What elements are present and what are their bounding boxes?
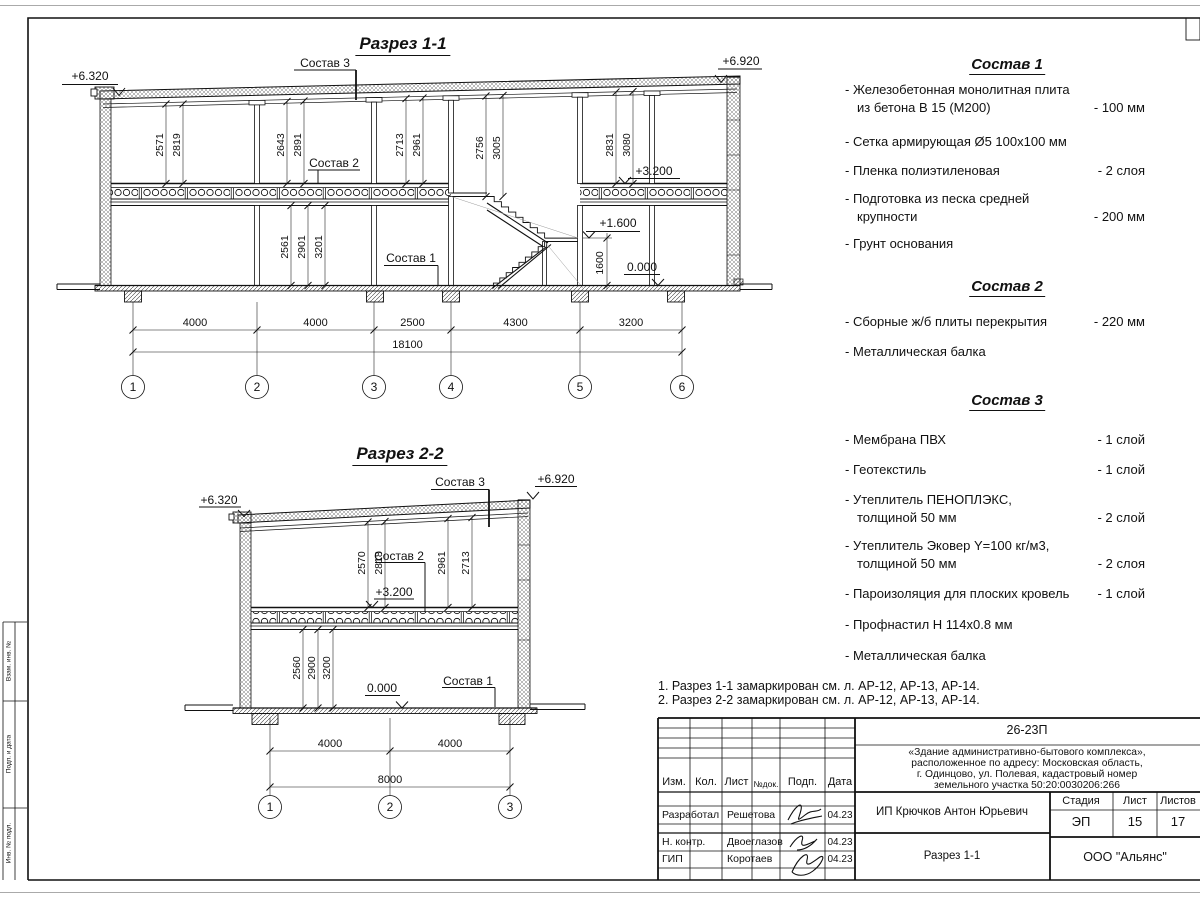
- dim-text: 2891: [292, 133, 304, 156]
- section1-linework: [57, 76, 772, 302]
- leader-label-sostav3: Состав 3: [435, 475, 485, 489]
- signature-3: [792, 855, 823, 876]
- dim-text: 4000: [318, 738, 342, 750]
- spec-value: - 2 слой: [1075, 510, 1145, 525]
- level-mark: +3.200: [375, 585, 412, 599]
- stamp-date: 04.23: [827, 854, 852, 865]
- spec-item: - Сетка армирующая Ø5 100х100 мм: [845, 134, 1067, 149]
- dim-text: 4300: [503, 317, 527, 329]
- stage-label: Стадия: [1062, 795, 1100, 807]
- spec-item: - Железобетонная монолитная плита: [845, 82, 1070, 97]
- spec-item: - Металлическая балка: [845, 648, 986, 663]
- spec-item: - Подготовка из песка средней: [845, 191, 1029, 206]
- dim-text: 2819: [171, 133, 183, 156]
- spec2-title: Состав 2: [969, 278, 1045, 297]
- dim-text: 4000: [438, 738, 462, 750]
- spec-item: крупности: [857, 209, 917, 224]
- axis-bubble: 4: [448, 380, 455, 394]
- spec-value: - 1 слой: [1075, 432, 1145, 447]
- spec-item: - Мембрана ПВХ: [845, 432, 946, 447]
- spec-value: - 200 мм: [1075, 209, 1145, 224]
- axis-bubble: 2: [254, 380, 261, 394]
- dim-text: 3200: [321, 656, 333, 679]
- stamp-date: 04.23: [827, 837, 852, 848]
- dim-text: 8000: [378, 774, 402, 786]
- stamp-role: ГИП: [662, 853, 683, 865]
- client-name: ИП Крючков Антон Юрьевич: [876, 806, 1028, 818]
- spec-item: толщиной 50 мм: [857, 556, 957, 571]
- leader-label-sostav1: Состав 1: [386, 251, 436, 265]
- drawing-sheet: Разрез 1-1 Состав 3 +6.320 +6.920 Состав…: [0, 0, 1200, 900]
- spec-value: - 220 мм: [1075, 314, 1145, 329]
- spec-item: - Геотекстиль: [845, 462, 926, 477]
- col-header: №док.: [754, 779, 779, 789]
- dim-text: 1600: [594, 251, 606, 274]
- company-name: ООО "Альянс": [1083, 850, 1167, 864]
- spec-item: - Сборные ж/б плиты перекрытия: [845, 314, 1047, 329]
- spec-item: - Металлическая балка: [845, 344, 986, 359]
- listov-label: Листов: [1160, 795, 1196, 807]
- level-mark: 0.000: [367, 681, 397, 695]
- spec-value: - 100 мм: [1075, 100, 1145, 115]
- stamp-name: Решетова: [727, 809, 775, 821]
- axis-bubble: 1: [267, 800, 274, 814]
- project-line: г. Одинцово, ул. Полевая, кадастровый но…: [917, 769, 1137, 780]
- dim-text: 2900: [306, 656, 318, 679]
- level-mark: +3.200: [635, 164, 672, 178]
- dim-text: 3201: [313, 235, 325, 258]
- spec-item: - Утеплитель ПЕНОПЛЭКС,: [845, 492, 1012, 507]
- dim-text: 2756: [474, 136, 486, 159]
- dim-text: 4000: [303, 317, 327, 329]
- listov-value: 17: [1171, 814, 1185, 829]
- spec-item: толщиной 50 мм: [857, 510, 957, 525]
- level-mark: +6.920: [537, 472, 574, 486]
- level-mark: +6.920: [722, 54, 759, 68]
- level-mark: +6.320: [200, 493, 237, 507]
- stamp-name: Коротаев: [727, 853, 772, 865]
- spec-item: из бетона В 15 (М200): [857, 100, 991, 115]
- signature-2: [790, 836, 817, 850]
- frame-stamp-label: Подп. и дата: [6, 735, 13, 773]
- drawing-title: Разрез 1-1: [924, 850, 980, 862]
- dim-text: 2561: [279, 235, 291, 258]
- note-line: 1. Разрез 1-1 замаркирован см. л. АР-12,…: [658, 679, 980, 693]
- dim-text: 2571: [154, 133, 166, 156]
- leader-label-sostav3: Состав 3: [300, 56, 350, 70]
- axis-bubble: 2: [387, 800, 394, 814]
- dim-text: 3080: [621, 133, 633, 156]
- col-header: Изм.: [662, 776, 686, 788]
- dim-text: 2818: [373, 551, 385, 574]
- project-line: «Здание административно-бытового комплек…: [908, 747, 1145, 758]
- dim-text: 3005: [491, 136, 503, 159]
- spec-item: - Пароизоляция для плоских кровель: [845, 586, 1069, 601]
- leader-label-sostav2: Состав 2: [309, 156, 359, 170]
- section2-title: Разрез 2-2: [352, 444, 447, 466]
- dim-text: 2901: [296, 235, 308, 258]
- axis-bubble: 1: [130, 380, 137, 394]
- list-value: 15: [1128, 814, 1142, 829]
- dim-text: 2961: [436, 551, 448, 574]
- dim-text: 18100: [392, 339, 423, 351]
- stamp-role: Н. контр.: [662, 836, 705, 848]
- dim-text: 2500: [400, 317, 424, 329]
- spec-item: - Грунт основания: [845, 236, 953, 251]
- spec-value: - 1 слой: [1075, 462, 1145, 477]
- spec1-title: Состав 1: [969, 56, 1045, 75]
- axis-bubble: 3: [507, 800, 514, 814]
- spec-value: - 2 слоя: [1075, 556, 1145, 571]
- dim-text: 2713: [460, 551, 472, 574]
- spec-value: - 2 слоя: [1075, 163, 1145, 178]
- stamp-date: 04.23: [827, 810, 852, 821]
- doc-number: 26-23П: [1007, 723, 1048, 737]
- note-line: 2. Разрез 2-2 замаркирован см. л. АР-12,…: [658, 693, 980, 707]
- dim-text: 2961: [411, 133, 423, 156]
- col-header: Подп.: [788, 776, 817, 788]
- axis-bubble: 6: [679, 380, 686, 394]
- col-header: Лист: [725, 776, 749, 788]
- spec-item: - Профнастил Н 114х0.8 мм: [845, 617, 1013, 632]
- list-label: Лист: [1123, 795, 1147, 807]
- spec-value: - 1 слой: [1075, 586, 1145, 601]
- project-line: земельного участка 50:20:0030206:266: [934, 780, 1120, 791]
- signatures: [788, 805, 823, 875]
- dim-text: 2643: [275, 133, 287, 156]
- level-mark: +1.600: [599, 216, 636, 230]
- frame-stamp-label: Взам. инв. №: [6, 641, 13, 681]
- level-mark: +6.320: [71, 69, 108, 83]
- stamp-name: Двоеглазов: [727, 836, 783, 848]
- dim-text: 2560: [291, 656, 303, 679]
- col-header: Кол.: [695, 776, 717, 788]
- project-line: расположенное по адресу: Московская обла…: [911, 758, 1142, 769]
- dim-text: 4000: [183, 317, 207, 329]
- signature-1: [788, 805, 822, 824]
- col-header: Дата: [828, 776, 852, 788]
- spec3-title: Состав 3: [969, 392, 1045, 411]
- axis-bubble: 3: [371, 380, 378, 394]
- dim-text: 3200: [619, 317, 643, 329]
- frame-stamp-label: Инв. № подл.: [6, 823, 13, 864]
- dim-text: 2570: [356, 551, 368, 574]
- spec-item: - Пленка полиэтиленовая: [845, 163, 1000, 178]
- stamp-role: Разработал: [662, 809, 719, 821]
- section1-title: Разрез 1-1: [355, 34, 450, 56]
- leader-label-sostav1: Состав 1: [443, 674, 493, 688]
- dim-text: 2831: [604, 133, 616, 156]
- dim-text: 2713: [394, 133, 406, 156]
- axis-bubble: 5: [577, 380, 584, 394]
- stage-value: ЭП: [1072, 814, 1091, 829]
- level-mark: 0.000: [627, 260, 657, 274]
- spec-item: - Утеплитель Эковер Y=100 кг/м3,: [845, 538, 1049, 553]
